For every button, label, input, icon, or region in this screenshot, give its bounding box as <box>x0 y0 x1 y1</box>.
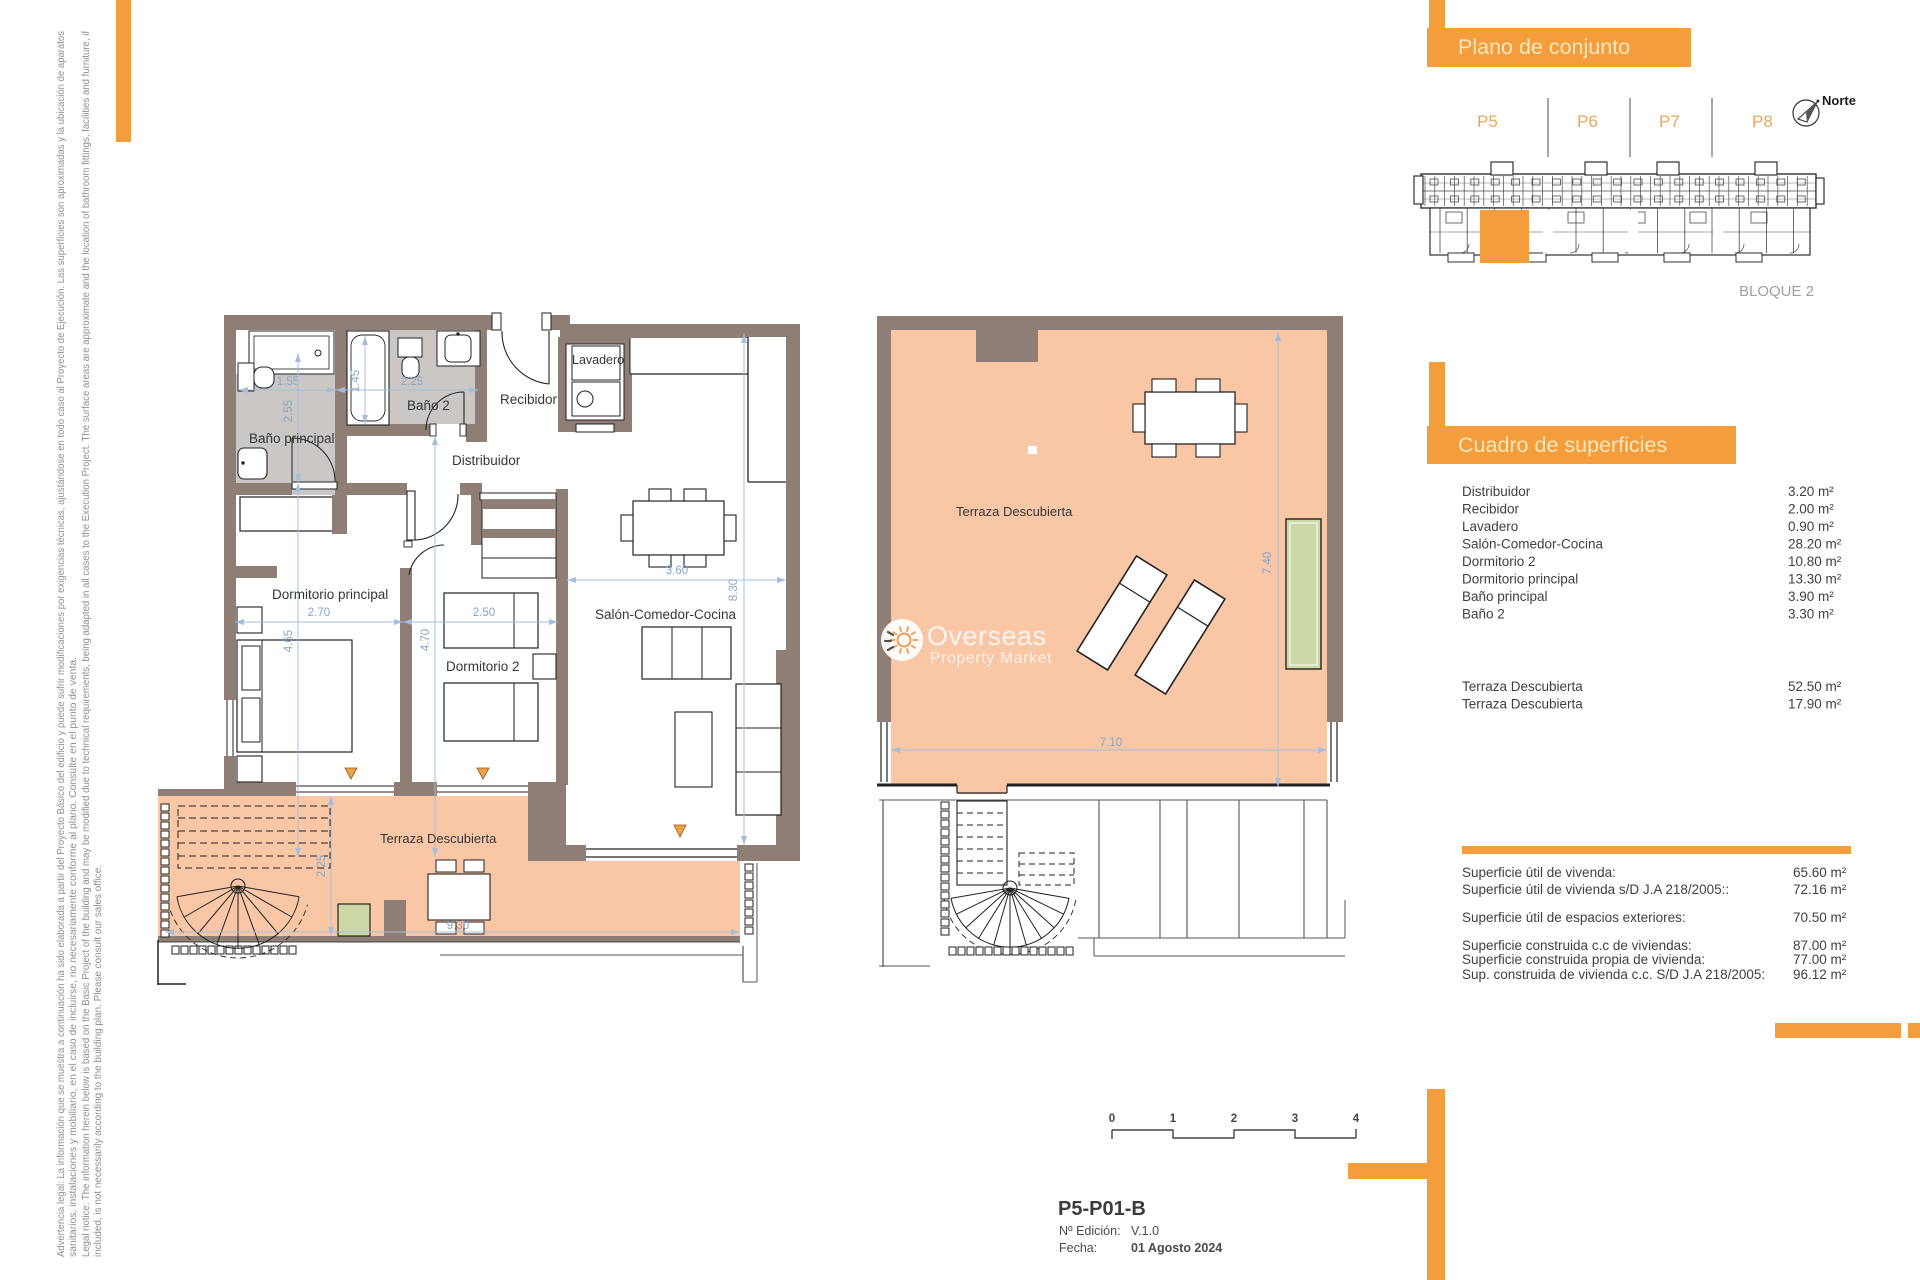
svg-text:Baño principal: Baño principal <box>1462 589 1548 604</box>
svg-text:2.00 m²: 2.00 m² <box>1788 502 1834 517</box>
svg-text:01 Agosto 2024: 01 Agosto 2024 <box>1131 1241 1222 1255</box>
svg-text:P5-P01-B: P5-P01-B <box>1058 1198 1146 1220</box>
svg-text:Distribuidor: Distribuidor <box>1462 484 1531 499</box>
svg-text:Recibidor: Recibidor <box>500 392 558 407</box>
svg-text:P7: P7 <box>1659 112 1680 131</box>
svg-text:included, is not necessarily a: included, is not necessarily according t… <box>93 865 104 1257</box>
svg-text:2.55: 2.55 <box>283 400 295 422</box>
svg-text:0.90 m²: 0.90 m² <box>1788 519 1834 534</box>
svg-text:3.20 m²: 3.20 m² <box>1788 484 1834 499</box>
svg-text:77.00 m²: 77.00 m² <box>1793 952 1847 967</box>
svg-text:Lavadero: Lavadero <box>572 353 624 367</box>
svg-text:1: 1 <box>1170 1113 1177 1125</box>
svg-text:Superficie construida c.c de v: Superficie construida c.c de viviendas: <box>1462 938 1692 953</box>
svg-text:2.25: 2.25 <box>316 855 328 877</box>
svg-text:28.20 m²: 28.20 m² <box>1788 537 1842 552</box>
svg-text:Superficie construida propia d: Superficie construida propia de vivienda… <box>1462 952 1705 967</box>
svg-text:65.60 m²: 65.60 m² <box>1793 865 1847 880</box>
svg-text:2.50: 2.50 <box>473 607 495 619</box>
svg-text:3.30 m²: 3.30 m² <box>1788 607 1834 622</box>
svg-text:87.00 m²: 87.00 m² <box>1793 938 1847 953</box>
svg-text:2.70: 2.70 <box>308 607 330 619</box>
svg-text:Distribuidor: Distribuidor <box>452 453 521 468</box>
svg-text:P8: P8 <box>1752 112 1773 131</box>
svg-text:Terraza Descubierta: Terraza Descubierta <box>1462 679 1583 694</box>
svg-text:P6: P6 <box>1577 112 1598 131</box>
svg-text:Dormitorio principal: Dormitorio principal <box>272 587 388 602</box>
svg-text:Nº Edición:: Nº Edición: <box>1059 1224 1121 1238</box>
svg-text:4.70: 4.70 <box>420 629 432 651</box>
svg-text:7.40: 7.40 <box>1262 552 1274 574</box>
svg-text:96.12 m²: 96.12 m² <box>1793 967 1847 982</box>
svg-text:Cuadro de superficies: Cuadro de superficies <box>1458 433 1667 457</box>
svg-text:3.90 m²: 3.90 m² <box>1788 589 1834 604</box>
svg-text:Sup. construida de vivienda c.: Sup. construida de vivienda c.c. S/D J.A… <box>1462 967 1765 982</box>
svg-text:7.10: 7.10 <box>1100 737 1122 749</box>
svg-text:Superficie útil de vivenda:: Superficie útil de vivenda: <box>1462 865 1616 880</box>
svg-text:Advertencia legal: La informac: Advertencia legal: La información que se… <box>56 31 67 1257</box>
svg-text:sanitarios, instalaciones y mo: sanitarios, instalaciones y mobiliario, … <box>68 657 79 1257</box>
svg-text:Superficie útil de vivienda s/: Superficie útil de vivienda s/D J.A 218/… <box>1462 882 1729 897</box>
svg-text:BLOQUE 2: BLOQUE 2 <box>1739 283 1814 300</box>
svg-text:8.30: 8.30 <box>728 579 740 601</box>
svg-text:V.1.0: V.1.0 <box>1131 1224 1159 1238</box>
svg-text:Superficie útil de espacios ex: Superficie útil de espacios exteriores: <box>1462 910 1686 925</box>
svg-text:Norte: Norte <box>1822 93 1856 108</box>
svg-text:Salón-Comedor-Cocina: Salón-Comedor-Cocina <box>1462 537 1604 552</box>
svg-text:Lavadero: Lavadero <box>1462 519 1518 534</box>
svg-text:52.50 m²: 52.50 m² <box>1788 679 1842 694</box>
svg-text:4.65: 4.65 <box>283 630 295 652</box>
svg-text:Plano de conjunto: Plano de conjunto <box>1458 35 1630 59</box>
svg-text:Legal notice: The information: Legal notice: The information herein bel… <box>81 31 92 1257</box>
svg-text:Terraza Descubierta: Terraza Descubierta <box>1462 697 1583 712</box>
svg-text:2.25: 2.25 <box>401 376 423 388</box>
svg-text:Overseas: Overseas <box>927 621 1047 651</box>
svg-text:Fecha:: Fecha: <box>1059 1241 1097 1255</box>
svg-text:13.30 m²: 13.30 m² <box>1788 572 1842 587</box>
svg-text:9.30: 9.30 <box>447 920 469 932</box>
svg-text:Property Market: Property Market <box>930 650 1052 667</box>
svg-text:4: 4 <box>1353 1113 1360 1125</box>
svg-text:72.16 m²: 72.16 m² <box>1793 882 1847 897</box>
svg-text:Baño 2: Baño 2 <box>1462 607 1505 622</box>
svg-text:Dormitorio 2: Dormitorio 2 <box>1462 554 1536 569</box>
svg-text:Dormitorio principal: Dormitorio principal <box>1462 572 1578 587</box>
svg-text:Dormitorio 2: Dormitorio 2 <box>446 659 520 674</box>
svg-text:Salón-Comedor-Cocina: Salón-Comedor-Cocina <box>595 607 737 622</box>
svg-text:2: 2 <box>1231 1113 1237 1125</box>
svg-text:1.45: 1.45 <box>350 370 362 392</box>
svg-text:0: 0 <box>1109 1113 1115 1125</box>
svg-text:3.60: 3.60 <box>666 565 688 577</box>
svg-text:Terraza Descubierta: Terraza Descubierta <box>956 504 1073 519</box>
svg-text:Recibidor: Recibidor <box>1462 502 1520 517</box>
svg-text:P5: P5 <box>1477 112 1498 131</box>
svg-text:17.90 m²: 17.90 m² <box>1788 697 1842 712</box>
svg-text:Baño principal: Baño principal <box>249 431 335 446</box>
svg-text:70.50 m²: 70.50 m² <box>1793 910 1847 925</box>
svg-text:Baño 2: Baño 2 <box>407 398 450 413</box>
svg-text:Terraza Descubierta: Terraza Descubierta <box>380 831 497 846</box>
svg-text:10.80 m²: 10.80 m² <box>1788 554 1842 569</box>
svg-text:1.55: 1.55 <box>277 376 299 388</box>
svg-text:3: 3 <box>1292 1113 1298 1125</box>
